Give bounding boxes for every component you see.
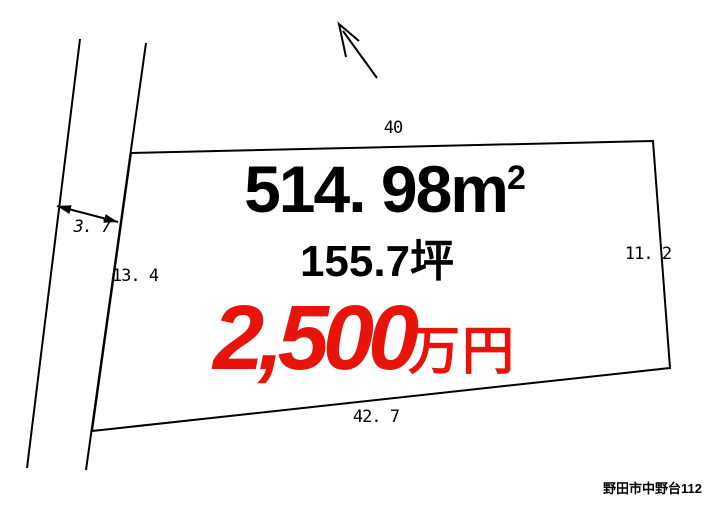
land-plot-diagram: 40 11. 2 42. 7 13. 4 3. 7 514. 98m2 155.… <box>0 0 720 509</box>
dimension-bottom-label: 42. 7 <box>353 409 399 426</box>
area-m2-value: 514. 98 <box>244 152 450 226</box>
address-label: 野田市中野台112 <box>603 482 702 495</box>
road-width-label: 3. 7 <box>74 219 111 236</box>
dimension-left-label: 13. 4 <box>112 268 158 285</box>
area-square-meters: 514. 98m2 <box>244 156 526 222</box>
north-arrow-icon <box>339 24 377 78</box>
dimension-right-label: 11. 2 <box>625 246 671 263</box>
area-tsubo: 155.7坪 <box>300 240 454 284</box>
area-m2-superscript: 2 <box>507 159 526 197</box>
dimension-top-label: 40 <box>384 120 402 137</box>
price-amount: 2,500 <box>213 292 413 384</box>
area-m2-unit: m <box>450 152 507 226</box>
price-unit: 万円 <box>408 326 516 378</box>
road-left-edge-line <box>27 39 80 468</box>
